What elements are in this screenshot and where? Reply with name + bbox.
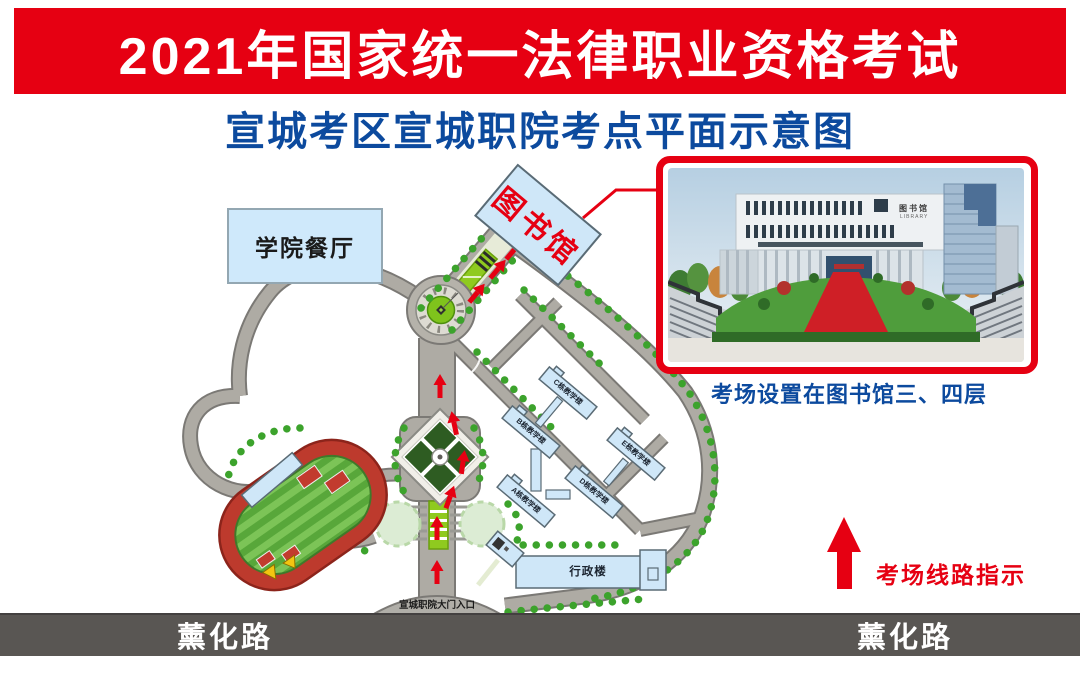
library-photo-scene — [668, 168, 1024, 362]
route-legend-label: 考场线路指示 — [876, 556, 1026, 590]
photo-connector-line — [583, 190, 658, 218]
street-label-left: 薰化路 — [177, 614, 273, 656]
poster: 2021年国家统一法律职业资格考试 宣城考区宣城职院考点平面示意图 学院餐厅 图… — [0, 0, 1080, 695]
street-label-right: 薰化路 — [857, 614, 953, 656]
arrow-head — [827, 517, 861, 552]
arrow-shaft — [837, 552, 852, 589]
page-title: 宣城考区宣城职院考点平面示意图 — [0, 99, 1080, 157]
library-sign-subtext: LIBRARY — [900, 214, 928, 220]
admin-building — [478, 531, 666, 590]
library-facade — [720, 184, 1018, 295]
banner: 2021年国家统一法律职业资格考试 — [14, 8, 1066, 94]
stadium-track — [198, 418, 409, 611]
library-photo: 图书馆 LIBRARY — [656, 156, 1038, 374]
gate-label: 宣城职院大门入口 — [399, 597, 475, 611]
cafeteria-building: 学院餐厅 — [227, 208, 383, 284]
admin-building-label: 行政楼 — [569, 563, 607, 579]
route-direction-arrow — [827, 517, 861, 589]
library-sign-text: 图书馆 — [899, 203, 929, 214]
photo-caption: 考场设置在图书馆三、四层 — [660, 377, 1038, 409]
banner-title: 2021年国家统一法律职业资格考试 — [119, 14, 962, 89]
